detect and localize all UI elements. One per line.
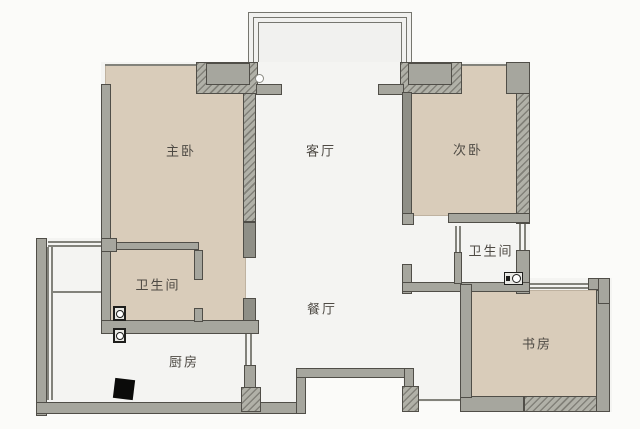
wall-second-bedroom-bottom-stub	[402, 213, 414, 225]
kitchen-door-line2	[250, 332, 252, 366]
room-label-kitchen: 厨房	[169, 352, 199, 371]
entry-niche-exterior	[300, 378, 403, 412]
wall-study-left	[460, 284, 472, 398]
kitchen-top-window-line2	[48, 245, 103, 247]
pier-right-core	[408, 63, 452, 85]
kitchen-flue-icon	[113, 378, 135, 400]
kitchen-door-line1	[245, 332, 247, 366]
wall-bathroom-left	[454, 252, 462, 284]
wall-junction-block	[101, 238, 117, 252]
wall-study-right	[596, 290, 610, 412]
wall-study-bottom	[460, 396, 524, 412]
wall-second-bedroom-bottom	[448, 213, 530, 223]
round-switch-icon	[255, 74, 264, 83]
wall-study-bottom-hatched	[524, 396, 598, 412]
entry-column	[402, 386, 419, 412]
room-label-living-room: 客厅	[306, 141, 336, 160]
exterior-pocket-right	[530, 62, 612, 278]
room-label-second-bedroom: 次卧	[453, 140, 483, 159]
wall-second-bedroom-top-right	[506, 62, 530, 94]
kitchen-divider-line	[51, 291, 108, 293]
entry-threshold-line	[418, 399, 462, 401]
wall-master-bath-top	[111, 242, 199, 250]
room-label-guest-bathroom: 卫生间	[468, 241, 513, 260]
wall-kitchen-left-exterior	[36, 238, 47, 416]
kitchen-top-window-line1	[48, 241, 103, 243]
bathroom-door-line1	[455, 226, 457, 252]
toilet-icon	[504, 272, 523, 285]
right-window-line1	[519, 224, 521, 251]
entry-door-gap	[418, 402, 462, 414]
right-window-line2	[524, 224, 526, 251]
room-label-master-bedroom: 主卧	[166, 141, 196, 160]
kitchen-column	[241, 387, 261, 412]
floor-drain-icon	[113, 328, 126, 343]
bay-window-line-inner	[258, 22, 402, 62]
wall-master-bath-right-upper	[194, 250, 203, 280]
pier-left-core	[206, 63, 250, 85]
kitchen-left-window-line2	[51, 247, 53, 400]
wall-master-left	[101, 84, 111, 332]
wall-study-corner-side	[598, 278, 610, 304]
floor-plan: 主卧 客厅 次卧 卫生间 卫生间 餐厅 厨房 书房	[0, 0, 640, 429]
room-label-dining-room: 餐厅	[307, 299, 337, 318]
kitchen-left-window-line1	[47, 247, 49, 400]
wall-master-bath-right-lower	[194, 308, 203, 322]
wall-second-bedroom-right	[516, 84, 530, 224]
wall-kitchen-divider	[244, 365, 256, 389]
wall-second-bedroom-left	[402, 92, 412, 216]
wall-master-right-upper	[243, 93, 256, 222]
floor-drain-icon	[113, 306, 126, 321]
wall-master-right-mid	[243, 222, 256, 258]
stub-wall-right	[378, 84, 404, 95]
wall-niche-top	[296, 368, 408, 378]
bathroom-door-line2	[459, 226, 461, 252]
wall-bottom-left	[36, 402, 306, 414]
room-label-master-bathroom: 卫生间	[135, 275, 180, 294]
stub-wall-left	[256, 84, 282, 95]
room-label-study: 书房	[522, 334, 552, 353]
master-bedroom-window	[105, 64, 197, 66]
